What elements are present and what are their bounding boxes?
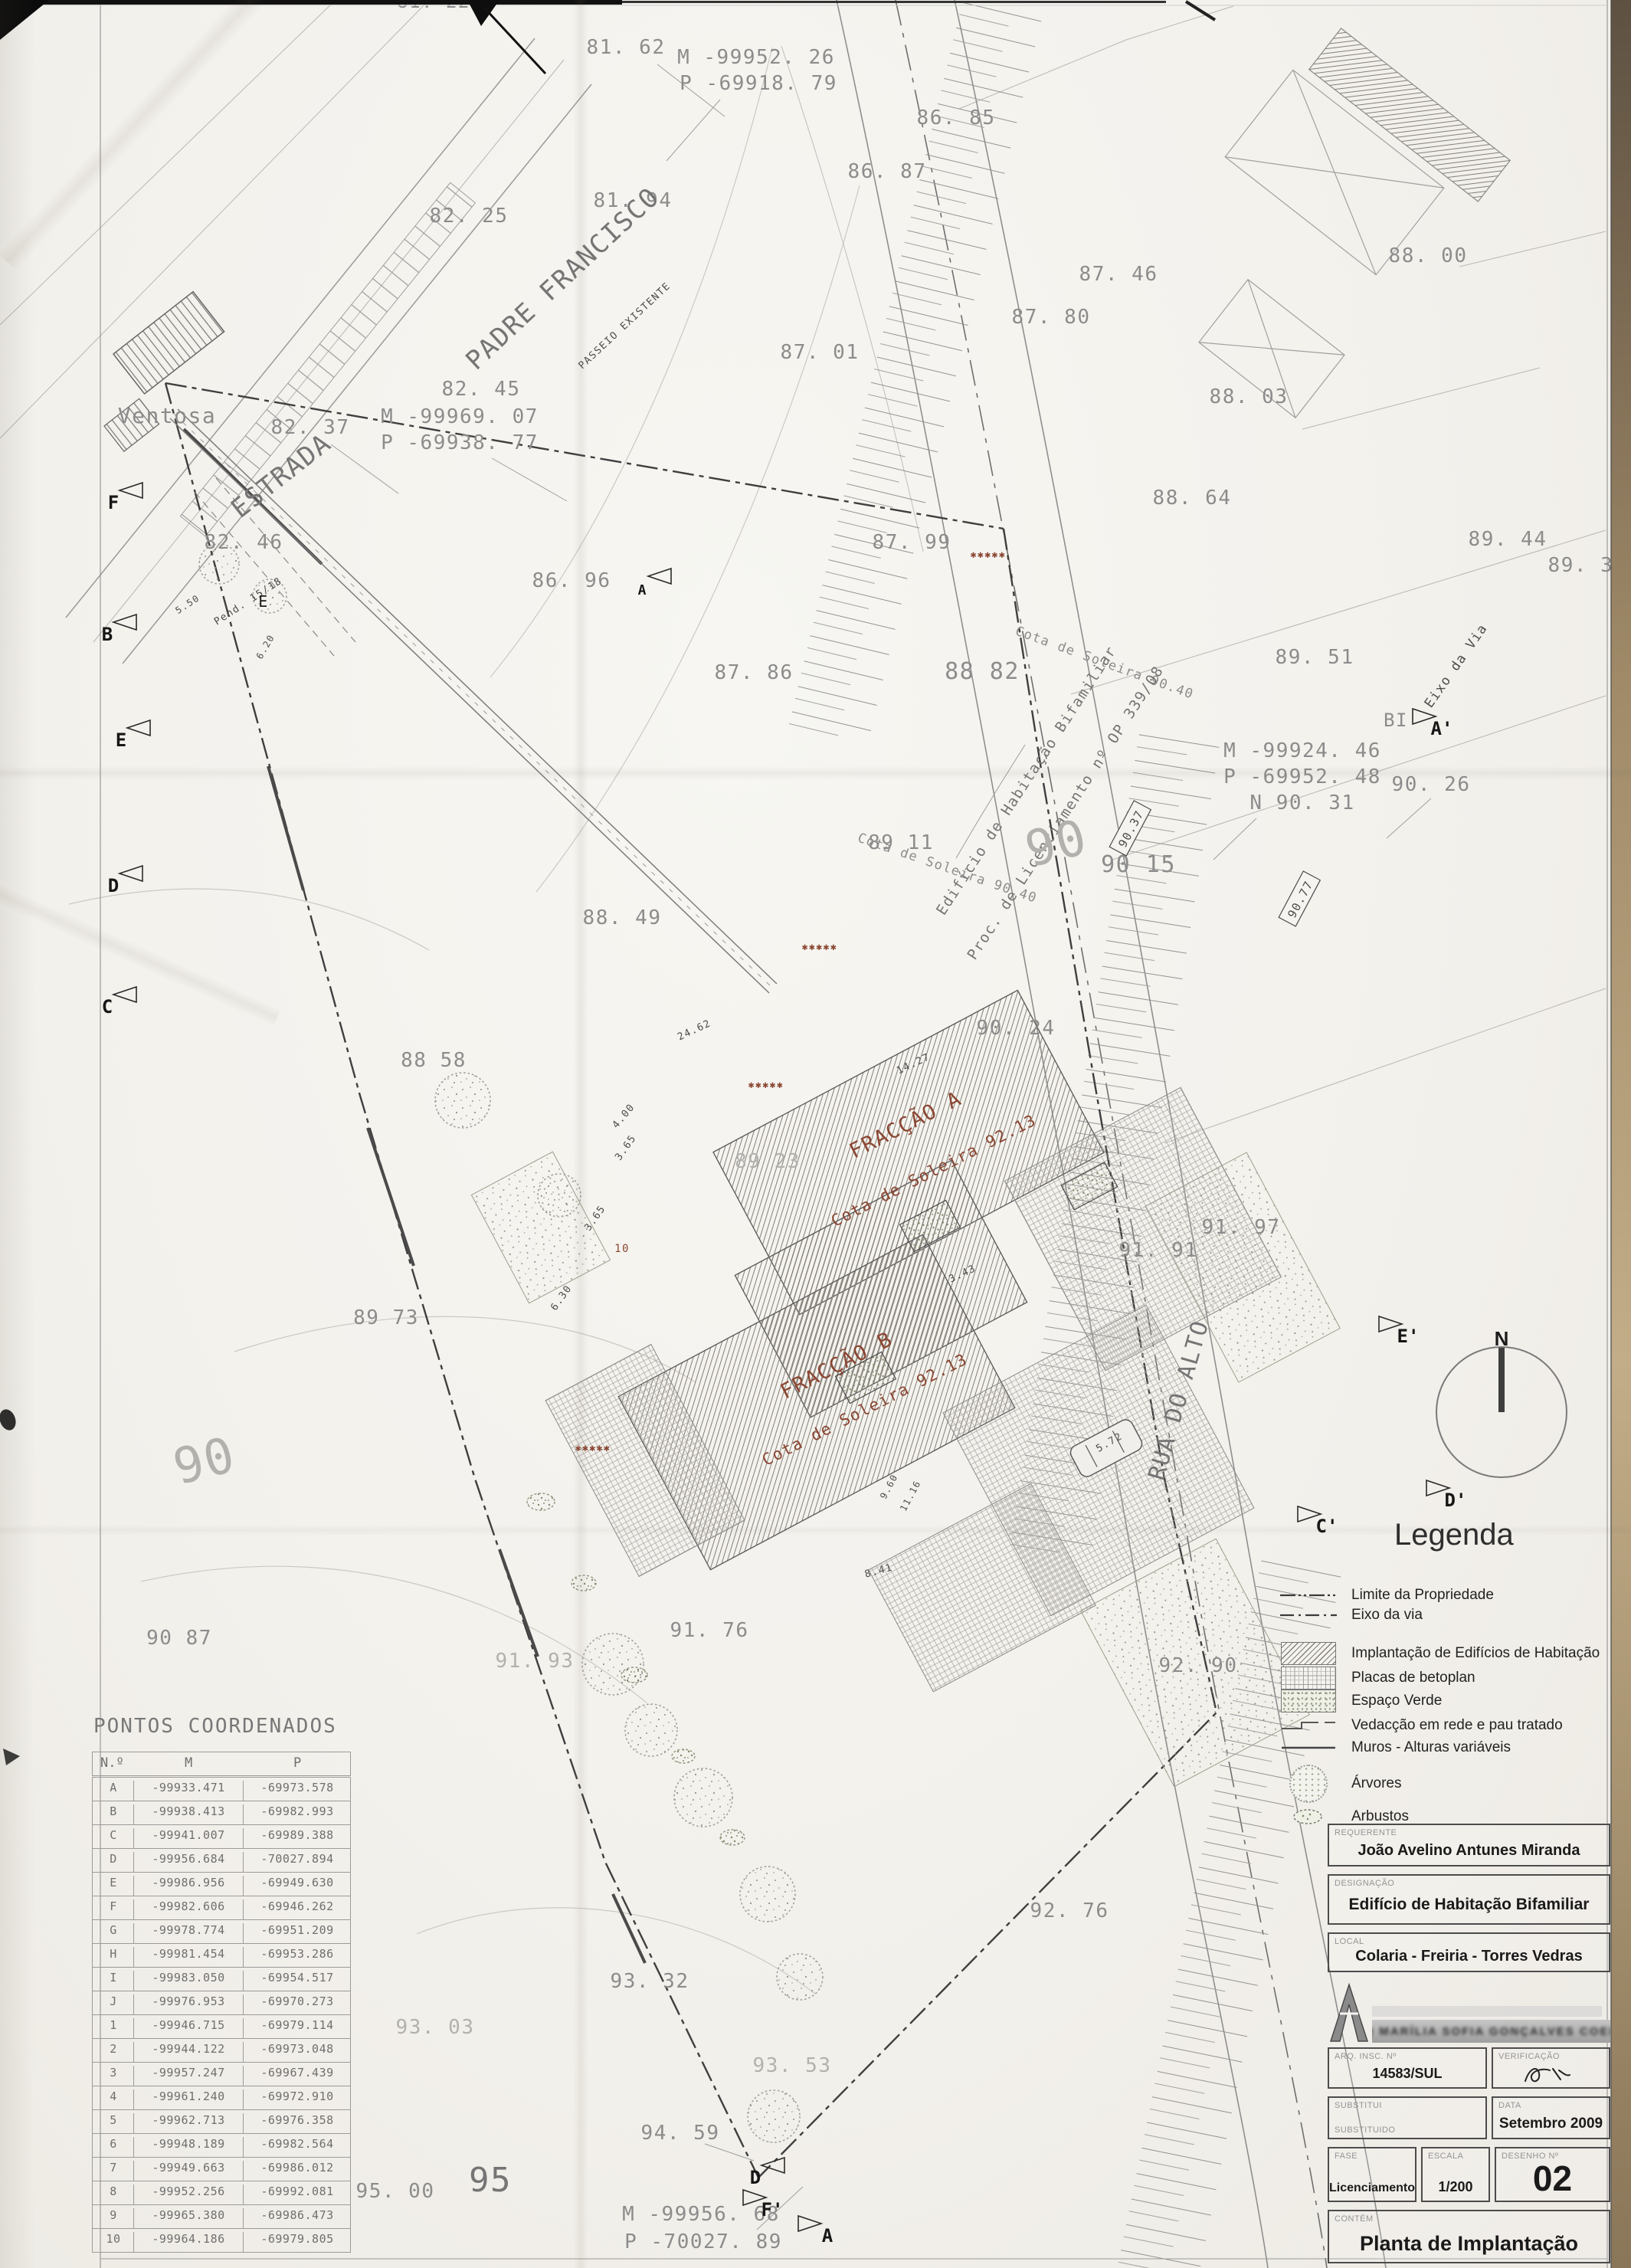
svg-text:11.16: 11.16	[898, 1479, 923, 1513]
table-cell: -99946.715	[133, 2018, 243, 2038]
section-marker: C	[102, 987, 136, 1018]
svg-text:87. 86: 87. 86	[715, 661, 794, 684]
contem-box: CONTÉM Planta de Implantação	[1328, 2210, 1610, 2263]
section-marker: D'	[1426, 1480, 1466, 1511]
svg-text:Ventosa: Ventosa	[118, 403, 217, 428]
legend-item-fence: Vedacção em rede e pau tratado	[1278, 1714, 1563, 1737]
plan-label: 91. 91	[1119, 1239, 1198, 1262]
verificacao-box: VERIFICAÇÃO	[1492, 2047, 1610, 2089]
designacao-value: Edifício de Habitação Bifamiliar	[1329, 1896, 1609, 1914]
legend-item-label: Arbustos	[1351, 1808, 1409, 1825]
table-cell: -69946.262	[243, 1899, 351, 1919]
svg-text:A: A	[822, 2225, 834, 2247]
table-cell: -99941.007	[133, 1828, 243, 1848]
svg-text:P -69918. 79: P -69918. 79	[680, 72, 837, 95]
table-cell: -70027.894	[243, 1852, 351, 1872]
legend-item-diagonal-hatch: Implantação de Edifícios de Habitação	[1278, 1642, 1600, 1665]
coordinates-table-title: PONTOS COORDENADOS	[93, 1715, 337, 1738]
local-box: LOCAL Colaria - Freiria - Torres Vedras	[1328, 1932, 1610, 1972]
svg-text:91. 97: 91. 97	[1202, 1216, 1281, 1239]
table-cell: -99962.713	[133, 2113, 243, 2133]
svg-text:88. 03: 88. 03	[1210, 385, 1289, 408]
section-marker: A	[798, 2216, 834, 2247]
svg-text:A': A'	[1431, 718, 1453, 739]
table-row: 4-99961.240-69972.910	[92, 2086, 351, 2110]
scan-smudge	[1372, 2006, 1602, 2017]
escala-value: 1/200	[1423, 2179, 1489, 2195]
legend-item-label: Árvores	[1351, 1775, 1401, 1792]
plan-label: ✱✱✱✱✱	[802, 942, 838, 953]
svg-text:PASSEIO EXISTENTE: PASSEIO EXISTENTE	[577, 280, 673, 372]
architect-name-redacted: ARQ MARÍLIA SOFIA GONÇALVES COELHO	[1372, 2025, 1610, 2038]
svg-text:M -99956. 68: M -99956. 68	[622, 2203, 780, 2226]
table-row: B-99938.413-69982.993	[92, 1801, 351, 1825]
svg-text:N 90. 31: N 90. 31	[1249, 792, 1354, 814]
grid-hatch-icon	[1278, 1667, 1339, 1690]
svg-text:88 58: 88 58	[401, 1049, 467, 1072]
svg-text:D: D	[750, 2167, 761, 2188]
plan-label: 6.20	[254, 632, 277, 660]
table-cell: -69989.388	[243, 1828, 351, 1848]
section-marker: A'	[1413, 709, 1453, 739]
architect-logo-strip: ARQ MARÍLIA SOFIA GONÇALVES COELHO	[1328, 1980, 1610, 2046]
table-row: J-99976.953-69970.273	[92, 1991, 351, 2015]
svg-text:C': C'	[1316, 1516, 1338, 1537]
table-cell: 6	[93, 2137, 134, 2151]
plan-label: 89. 51	[1276, 646, 1354, 669]
table-cell: -69979.805	[243, 2232, 351, 2252]
svg-text:91. 91: 91. 91	[1119, 1239, 1198, 1262]
plan-label: P -69918. 79	[680, 72, 837, 95]
field-label: DATA	[1498, 2101, 1521, 2110]
svg-text:90 15: 90 15	[1101, 851, 1176, 878]
plan-label: ✱✱✱✱✱	[748, 1080, 784, 1091]
tree-icon	[1278, 1765, 1339, 1803]
svg-text:D': D'	[1445, 1490, 1467, 1511]
table-cell: -69982.564	[243, 2137, 351, 2157]
svg-text:89. 51: 89. 51	[1276, 646, 1354, 669]
fase-box: FASE Licenciamento	[1328, 2147, 1416, 2202]
plan-label: 81. 62	[587, 36, 666, 59]
arq-insc-value: 14583/SUL	[1329, 2066, 1485, 2082]
svg-text:P -70027. 89: P -70027. 89	[624, 2230, 782, 2253]
svg-text:M -99969. 07: M -99969. 07	[381, 405, 539, 428]
table-cell: -69976.358	[243, 2113, 351, 2133]
table-cell: -99976.953	[133, 1994, 243, 2014]
legend-item-dash-dot: Eixo da via	[1278, 1604, 1423, 1627]
svg-text:F': F'	[761, 2199, 784, 2220]
legend-item-speckle: Espaço Verde	[1278, 1690, 1442, 1712]
table-cell: -69951.209	[243, 1923, 351, 1943]
svg-text:D: D	[108, 875, 119, 896]
field-label: LOCAL	[1335, 1937, 1364, 1946]
svg-text:87. 46: 87. 46	[1079, 263, 1158, 286]
table-cell: -69982.993	[243, 1804, 351, 1824]
plan-label: 82. 46	[205, 531, 283, 554]
table-cell: -69973.048	[243, 2042, 351, 2062]
parking-ladder	[180, 182, 475, 536]
table-cell: -99983.050	[133, 1971, 243, 1991]
table-row: D-99956.684-70027.894	[92, 1848, 351, 1873]
svg-text:BI: BI	[1384, 710, 1408, 731]
table-cell: -99956.684	[133, 1852, 243, 1872]
svg-text:✱✱✱✱✱: ✱✱✱✱✱	[575, 1443, 611, 1454]
field-label: CONTÉM	[1335, 2214, 1374, 2224]
plan-label: 4.00	[611, 1102, 637, 1131]
table-cell: -69992.081	[243, 2184, 351, 2204]
plan-label: 90 15	[1101, 851, 1176, 878]
svg-text:95. 00: 95. 00	[356, 2180, 435, 2203]
svg-text:87. 01: 87. 01	[781, 341, 860, 364]
table-cell: -99982.606	[133, 1899, 243, 1919]
plan-label: M -99969. 07	[381, 405, 539, 428]
plan-label: 87. 46	[1079, 263, 1158, 286]
table-cell: F	[93, 1899, 134, 1913]
fence-icon	[1278, 1719, 1339, 1732]
table-cell: 7	[93, 2161, 134, 2175]
dash-dot-dot-icon	[1278, 1591, 1339, 1599]
svg-text:89 11: 89 11	[868, 831, 934, 854]
svg-text:94. 59: 94. 59	[641, 2122, 720, 2145]
table-cell: -99933.471	[133, 1781, 243, 1801]
table-cell: 2	[93, 2042, 134, 2056]
svg-text:C: C	[102, 996, 113, 1018]
field-label: DESIGNAÇÃO	[1335, 1879, 1394, 1888]
plan-label: M -99956. 68	[622, 2203, 780, 2226]
plan-label: 87. 01	[781, 341, 860, 364]
plan-label: 89 73	[353, 1306, 419, 1329]
plan-label: P -70027. 89	[624, 2230, 782, 2253]
table-cell: 9	[93, 2208, 134, 2222]
svg-text:91. 76: 91. 76	[670, 1619, 749, 1642]
plan-label: 90. 26	[1392, 773, 1471, 796]
table-row: F-99982.606-69946.262	[92, 1896, 351, 1920]
table-cell: -99944.122	[133, 2042, 243, 2062]
table-row: 1-99946.715-69979.114	[92, 2014, 351, 2039]
table-cell: 3	[93, 2066, 134, 2080]
legend-item-tree: Árvores	[1278, 1765, 1401, 1803]
data-box: DATA Setembro 2009	[1492, 2096, 1610, 2139]
arq-insc-box: ARQ. INSC. Nº 14583/SUL	[1328, 2047, 1487, 2089]
field-label: VERIFICAÇÃO	[1498, 2052, 1560, 2061]
desenho-box: DESENHO Nº 02	[1495, 2147, 1610, 2202]
plan-label: 90. 24	[977, 1017, 1056, 1040]
plan-label: 90.77	[1279, 871, 1320, 926]
plan-label: BI	[1384, 710, 1408, 731]
table-cell: -69953.286	[243, 1947, 351, 1967]
requerente-value: João Avelino Antunes Miranda	[1329, 1842, 1609, 1860]
field-label: FASE	[1335, 2152, 1358, 2161]
plan-label: M -99952. 26	[677, 46, 835, 69]
plan-label: 90	[168, 1427, 241, 1496]
plan-label: E	[258, 592, 269, 611]
plan-label: 89 11	[868, 831, 934, 854]
field-label: SUBSTITUI	[1335, 2101, 1382, 2110]
plan-label: 86. 96	[532, 569, 611, 592]
legend-item-label: Espaço Verde	[1351, 1693, 1442, 1709]
table-cell: 5	[93, 2113, 134, 2127]
svg-text:10: 10	[614, 1243, 630, 1255]
column-header: N.º	[100, 1755, 124, 1771]
table-row: H-99981.454-69953.286	[92, 1943, 351, 1968]
svg-text:3.65: 3.65	[613, 1132, 639, 1162]
svg-text:✱✱✱✱✱: ✱✱✱✱✱	[971, 549, 1007, 561]
svg-text:93. 03: 93. 03	[396, 2016, 475, 2039]
table-cell: I	[93, 1971, 134, 1984]
place-label-ventosa: Ventosa	[118, 403, 217, 428]
svg-text:90: 90	[1020, 809, 1093, 879]
plan-label: 90 87	[146, 1627, 212, 1650]
section-marker: C'	[1298, 1506, 1338, 1537]
section-marker: D	[750, 2158, 784, 2188]
svg-text:87. 99: 87. 99	[873, 531, 951, 554]
table-row: 10-99964.186-69979.805	[92, 2228, 351, 2253]
table-cell: -99948.189	[133, 2137, 243, 2157]
table-cell: E	[93, 1876, 134, 1889]
section-marker: E'	[1379, 1316, 1419, 1347]
road-axis-label: Eixo da Via	[1422, 621, 1491, 711]
section-marker: A	[638, 569, 671, 598]
svg-text:6.20: 6.20	[254, 632, 277, 660]
plan-label: 92. 76	[1030, 1899, 1109, 1922]
plan-label: 24.62	[676, 1018, 713, 1043]
svg-text:Eixo da Via: Eixo da Via	[1422, 621, 1491, 711]
table-row: 5-99962.713-69976.358	[92, 2109, 351, 2134]
table-cell: -69986.012	[243, 2161, 351, 2181]
svg-text:86. 85: 86. 85	[917, 107, 996, 129]
substitui-box: SUBSTITUI SUBSTITUIDO	[1328, 2096, 1487, 2139]
table-cell: D	[93, 1852, 134, 1866]
table-row: C-99941.007-69989.388	[92, 1824, 351, 1849]
svg-text:91. 93: 91. 93	[496, 1650, 575, 1673]
dash-dot-icon	[1278, 1611, 1339, 1619]
svg-text:F: F	[108, 492, 119, 513]
plan-label: 88. 64	[1153, 487, 1232, 510]
compass-north-label: N	[1495, 1327, 1509, 1350]
plan-label: 10	[614, 1243, 630, 1255]
plan-label: 88 58	[401, 1049, 467, 1072]
verification-signature	[1521, 2061, 1574, 2087]
table-cell: -99952.256	[133, 2184, 243, 2204]
plan-label: 93. 03	[396, 2016, 475, 2039]
column-header: P	[293, 1755, 301, 1771]
plan-label: M -99924. 46	[1223, 739, 1381, 762]
svg-text:82. 25: 82. 25	[430, 205, 509, 228]
svg-text:89. 44: 89. 44	[1469, 528, 1547, 551]
svg-text:89 73: 89 73	[353, 1306, 419, 1329]
svg-text:E': E'	[1397, 1326, 1420, 1347]
plan-label: 88. 03	[1210, 385, 1289, 408]
svg-text:88. 00: 88. 00	[1389, 244, 1468, 267]
plan-label: 82. 25	[430, 205, 509, 228]
table-cell: -99957.247	[133, 2066, 243, 2086]
plan-label: 90	[1020, 809, 1093, 879]
plan-label: 88. 49	[583, 906, 662, 929]
plan-label: 88 82	[945, 658, 1020, 685]
compass: N	[1436, 1327, 1567, 1477]
plan-label: N 90. 31	[1249, 792, 1354, 814]
table-cell: H	[93, 1947, 134, 1961]
table-row: 2-99944.122-69973.048	[92, 2038, 351, 2063]
legend-item-solid-line: Muros - Alturas variáveis	[1278, 1736, 1511, 1759]
table-cell: -69972.910	[243, 2089, 351, 2109]
svg-text:90: 90	[168, 1427, 241, 1496]
coordinates-table-header: N.º M P	[92, 1752, 351, 1776]
legend-item-label: Implantação de Edifícios de Habitação	[1351, 1645, 1600, 1662]
svg-text:90. 24: 90. 24	[977, 1017, 1056, 1040]
plan-label: 92. 90	[1159, 1654, 1238, 1677]
svg-text:A: A	[638, 582, 647, 598]
svg-text:24.62: 24.62	[676, 1018, 713, 1043]
designacao-box: DESIGNAÇÃO Edifício de Habitação Bifamil…	[1328, 1874, 1610, 1925]
table-cell: 10	[93, 2232, 134, 2246]
table-cell: -99949.663	[133, 2161, 243, 2181]
section-marker: E	[116, 720, 150, 751]
table-cell: -69967.439	[243, 2066, 351, 2086]
plan-label: 11.16	[898, 1479, 923, 1513]
table-cell: G	[93, 1923, 134, 1937]
plan-label: 82. 45	[442, 378, 521, 401]
table-row: 8-99952.256-69992.081	[92, 2181, 351, 2205]
table-row: 3-99957.247-69967.439	[92, 2062, 351, 2086]
legend-item-grid-hatch: Placas de betoplan	[1278, 1667, 1475, 1690]
table-cell: -99986.956	[133, 1876, 243, 1896]
table-cell: -99981.454	[133, 1947, 243, 1967]
plan-label: 93. 32	[611, 1970, 689, 1993]
table-row: I-99983.050-69954.517	[92, 1967, 351, 1991]
svg-text:M -99924. 46: M -99924. 46	[1223, 739, 1381, 762]
data-value: Setembro 2009	[1493, 2116, 1609, 2132]
legend-item-label: Eixo da via	[1351, 1607, 1423, 1624]
existing-buildings	[1199, 28, 1510, 418]
table-cell: 8	[93, 2184, 134, 2198]
plan-label: PASSEIO EXISTENTE	[577, 280, 673, 372]
svg-text:92. 90: 92. 90	[1159, 1654, 1238, 1677]
legend-title: Legenda	[1394, 1518, 1514, 1552]
table-cell: B	[93, 1804, 134, 1818]
svg-text:88. 49: 88. 49	[583, 906, 662, 929]
field-label: SUBSTITUIDO	[1335, 2125, 1395, 2135]
table-cell: -69970.273	[243, 1994, 351, 2014]
svg-text:86. 87: 86. 87	[848, 160, 927, 183]
fase-value: Licenciamento	[1329, 2181, 1415, 2195]
legend-item-label: Limite da Propriedade	[1351, 1587, 1494, 1604]
table-row: 6-99948.189-69982.564	[92, 2133, 351, 2158]
plan-label: P -69938. 77	[381, 431, 539, 454]
table-cell: -99978.774	[133, 1923, 243, 1943]
table-cell: -99964.186	[133, 2232, 243, 2252]
table-row: E-99986.956-69949.630	[92, 1872, 351, 1896]
table-cell: -99938.413	[133, 1804, 243, 1824]
table-row: 9-99965.380-69986.473	[92, 2204, 351, 2229]
plan-label: 93. 53	[753, 2054, 832, 2077]
svg-text:P -69938. 77: P -69938. 77	[381, 431, 539, 454]
section-marker: F	[108, 483, 142, 513]
svg-text:87. 80: 87. 80	[1012, 306, 1091, 329]
architect-name-banner: ARQ MARÍLIA SOFIA GONÇALVES COELHO	[1372, 2020, 1610, 2043]
plan-label: 87. 80	[1012, 306, 1091, 329]
plan-label: 95	[469, 2161, 512, 2200]
table-cell: -69954.517	[243, 1971, 351, 1991]
escala-box: ESCALA 1/200	[1421, 2147, 1490, 2202]
plan-label: 88. 00	[1389, 244, 1468, 267]
plan-label: 86. 87	[848, 160, 927, 183]
plan-label: 87. 86	[715, 661, 794, 684]
plan-label: 95. 00	[356, 2180, 435, 2203]
table-row: G-99978.774-69951.209	[92, 1919, 351, 1944]
plan-label: 91. 76	[670, 1619, 749, 1642]
table-cell: -69973.578	[243, 1781, 351, 1801]
desenho-value: 02	[1496, 2158, 1609, 2199]
svg-text:4.00: 4.00	[611, 1102, 637, 1131]
svg-text:✱✱✱✱✱: ✱✱✱✱✱	[802, 942, 838, 953]
table-cell: -99961.240	[133, 2089, 243, 2109]
table-cell: -69986.473	[243, 2208, 351, 2228]
svg-text:B: B	[102, 624, 113, 645]
svg-text:90 87: 90 87	[146, 1627, 212, 1650]
speckle-icon	[1278, 1690, 1339, 1712]
legend-item-label: Placas de betoplan	[1351, 1670, 1475, 1686]
svg-text:93. 32: 93. 32	[611, 1970, 689, 1993]
table-row: 7-99949.663-69986.012	[92, 2157, 351, 2181]
requerente-box: REQUERENTE João Avelino Antunes Miranda	[1328, 1824, 1610, 1867]
plan-label: 91. 93	[496, 1650, 575, 1673]
svg-text:M -99952. 26: M -99952. 26	[677, 46, 835, 69]
svg-text:90. 26: 90. 26	[1392, 773, 1471, 796]
section-marker: B	[102, 615, 136, 645]
plan-label: 3.65	[613, 1132, 639, 1162]
svg-text:82. 45: 82. 45	[442, 378, 521, 401]
table-cell: -99965.380	[133, 2208, 243, 2228]
plan-label: 89. 44	[1469, 528, 1547, 551]
svg-text:88. 64: 88. 64	[1153, 487, 1232, 510]
neighbor-parcel-lines	[0, 0, 1606, 1143]
svg-text:88 82: 88 82	[945, 658, 1020, 685]
architect-logo	[1328, 1980, 1371, 2046]
field-label: REQUERENTE	[1335, 1828, 1397, 1837]
field-label: ESCALA	[1428, 2152, 1463, 2161]
svg-text:E: E	[116, 729, 126, 751]
diagonal-hatch-icon	[1278, 1642, 1339, 1665]
table-row: A-99933.471-69973.578	[92, 1777, 351, 1801]
plan-label: ✱✱✱✱✱	[575, 1443, 611, 1454]
svg-text:89 23: 89 23	[735, 1150, 801, 1173]
svg-text:✱✱✱✱✱: ✱✱✱✱✱	[748, 1080, 784, 1091]
table-cell: J	[93, 1994, 134, 2008]
svg-text:86. 96: 86. 96	[532, 569, 611, 592]
svg-text:92. 76: 92. 76	[1030, 1899, 1109, 1922]
table-cell: A	[93, 1781, 134, 1794]
column-header: M	[185, 1755, 192, 1771]
local-value: Colaria - Freiria - Torres Vedras	[1329, 1948, 1609, 1965]
svg-text:93. 53: 93. 53	[753, 2054, 832, 2077]
plan-label: ✱✱✱✱✱	[971, 549, 1007, 561]
svg-text:95: 95	[469, 2161, 512, 2200]
table-cell: -69949.630	[243, 1876, 351, 1896]
table-cell: -69979.114	[243, 2018, 351, 2038]
svg-text:E: E	[258, 592, 269, 611]
plan-label: 94. 59	[641, 2122, 720, 2145]
svg-text:P -69952. 48: P -69952. 48	[1223, 765, 1381, 788]
plan-label: 91. 97	[1202, 1216, 1281, 1239]
field-label: ARQ. INSC. Nº	[1335, 2052, 1397, 2061]
plan-label: 86. 85	[917, 107, 996, 129]
plan-label: P -69952. 48	[1223, 765, 1381, 788]
coordinates-table-body: A-99933.471-69973.578B-99938.413-69982.9…	[92, 1778, 351, 2253]
scanned-site-plan-sheet: { "compass": { "north_label": "N" }, "pl…	[0, 0, 1631, 2268]
svg-text:81. 62: 81. 62	[587, 36, 666, 59]
table-cell: C	[93, 1828, 134, 1842]
